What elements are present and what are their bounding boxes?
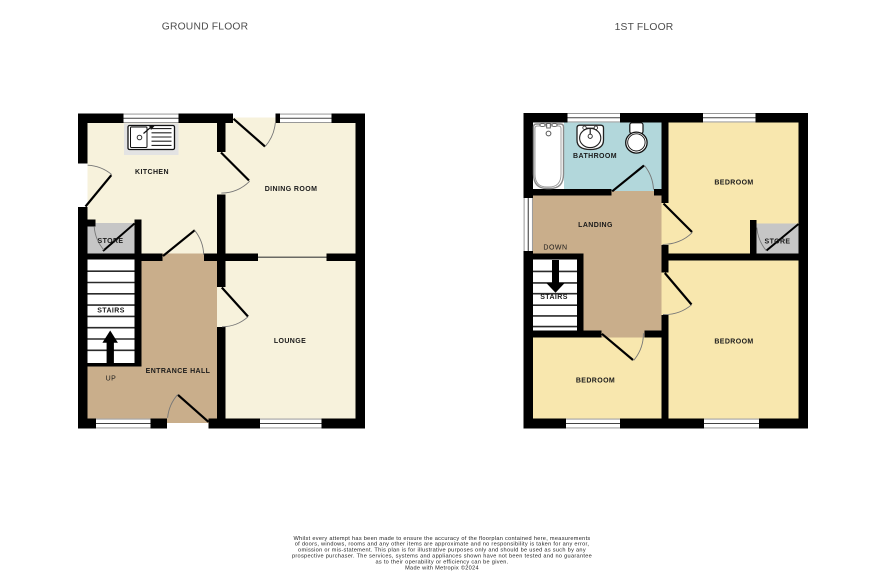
svg-text:GROUND FLOOR: GROUND FLOOR <box>162 22 249 33</box>
svg-text:BEDROOM: BEDROOM <box>714 180 753 187</box>
svg-text:STAIRS: STAIRS <box>540 294 568 301</box>
svg-text:BATHROOM: BATHROOM <box>573 153 617 160</box>
svg-text:STORE: STORE <box>98 238 124 245</box>
svg-text:UP: UP <box>106 376 117 383</box>
svg-text:DOWN: DOWN <box>543 245 567 252</box>
svg-text:STAIRS: STAIRS <box>97 308 125 315</box>
svg-text:Made with Metropix ©2024: Made with Metropix ©2024 <box>405 564 479 571</box>
svg-text:BEDROOM: BEDROOM <box>576 378 615 385</box>
svg-text:LANDING: LANDING <box>578 222 613 229</box>
svg-text:LOUNGE: LOUNGE <box>274 338 306 345</box>
svg-text:BEDROOM: BEDROOM <box>714 339 753 346</box>
svg-text:DINING ROOM: DINING ROOM <box>265 186 318 193</box>
svg-text:ENTRANCE HALL: ENTRANCE HALL <box>146 368 211 375</box>
svg-text:1ST FLOOR: 1ST FLOOR <box>615 22 674 33</box>
svg-text:STORE: STORE <box>765 239 791 246</box>
svg-text:KITCHEN: KITCHEN <box>135 169 169 176</box>
